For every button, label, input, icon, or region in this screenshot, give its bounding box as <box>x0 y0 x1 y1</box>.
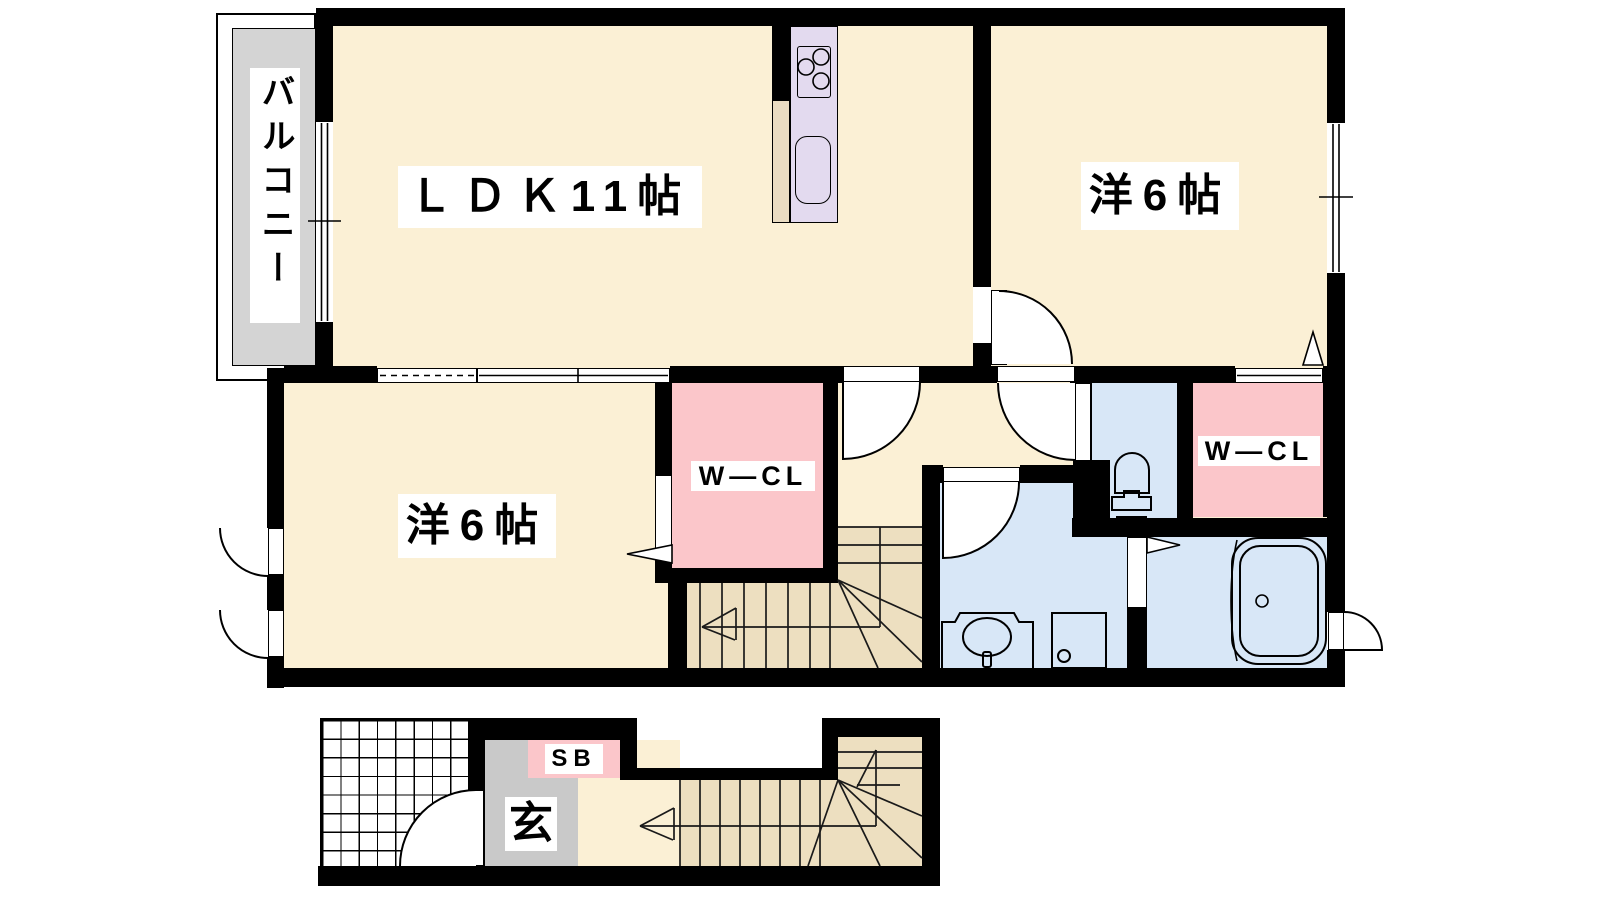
wall <box>655 568 838 583</box>
bathroom <box>1147 537 1327 668</box>
floor-plan-canvas: バルコニー ＬＤＫ11帖 洋6帖 洋6帖 W—CL W—CL SB 玄 <box>0 0 1600 900</box>
storage-door-leaf-1 <box>268 528 284 575</box>
bedroom-door-leaf <box>991 290 1007 365</box>
wall <box>1177 382 1193 537</box>
ldk-door-opening <box>843 366 920 382</box>
wall <box>670 366 843 383</box>
wall <box>772 26 790 100</box>
wall <box>1070 366 1235 383</box>
wcl-right-sliding-door <box>1235 368 1323 383</box>
wall <box>1327 8 1345 123</box>
entrance-door-leaf <box>468 790 484 866</box>
wall <box>1127 608 1147 668</box>
wall <box>267 668 1345 687</box>
wall <box>316 8 1345 26</box>
stove-icon <box>797 46 831 98</box>
wall <box>823 382 838 583</box>
shoebox-label: SB <box>545 744 603 774</box>
stairs-2f-winder <box>838 527 922 583</box>
wall <box>1020 465 1092 483</box>
wall <box>655 382 672 475</box>
sliding-window-strip-dashed <box>377 368 477 383</box>
wcl-center-label: W—CL <box>691 461 815 491</box>
toilet-door-opening <box>997 366 1075 382</box>
kitchen-counter-base <box>772 100 790 223</box>
wall <box>267 657 284 688</box>
wall <box>630 768 822 780</box>
wall <box>267 368 284 528</box>
bath-exterior-door-leaf <box>1328 612 1344 650</box>
wall <box>668 583 687 687</box>
stairs-1f-winder <box>838 737 922 780</box>
window-ldk-west <box>316 122 333 322</box>
wall <box>922 718 940 868</box>
wall <box>973 343 991 368</box>
entrance-label: 玄 <box>505 797 557 851</box>
balcony-label: バルコニー <box>250 68 300 323</box>
stairs-2f-run <box>687 583 922 668</box>
ldk-label: ＬＤＫ11帖 <box>398 166 702 228</box>
wall <box>1092 460 1110 518</box>
wall <box>284 366 377 383</box>
toilet-door-leaf <box>1075 383 1091 461</box>
bedroom-door-opening <box>973 287 991 343</box>
wall <box>468 718 485 790</box>
wall <box>973 26 991 287</box>
wcl-center-door <box>655 475 672 560</box>
wall <box>1323 366 1345 383</box>
bedroom-left-label: 洋6帖 <box>398 494 556 558</box>
wall <box>316 8 333 122</box>
wall <box>920 366 997 383</box>
storage-door-leaf-2 <box>268 610 284 657</box>
wall <box>318 866 940 886</box>
window-bedroom-east <box>1327 123 1345 273</box>
wall <box>267 575 284 610</box>
sliding-window-strip <box>477 368 670 383</box>
washroom-door-opening <box>943 467 1020 482</box>
wall <box>1323 382 1345 517</box>
wall <box>485 718 637 740</box>
wall <box>922 465 940 687</box>
wcl-right-label: W—CL <box>1198 436 1320 466</box>
stairs-1f-run <box>680 780 922 866</box>
bath-folding-door <box>1127 537 1147 608</box>
wall <box>1072 518 1345 537</box>
kitchen-sink-icon <box>795 136 831 204</box>
bedroom-right-label: 洋6帖 <box>1081 162 1239 230</box>
porch-tile <box>320 718 485 868</box>
